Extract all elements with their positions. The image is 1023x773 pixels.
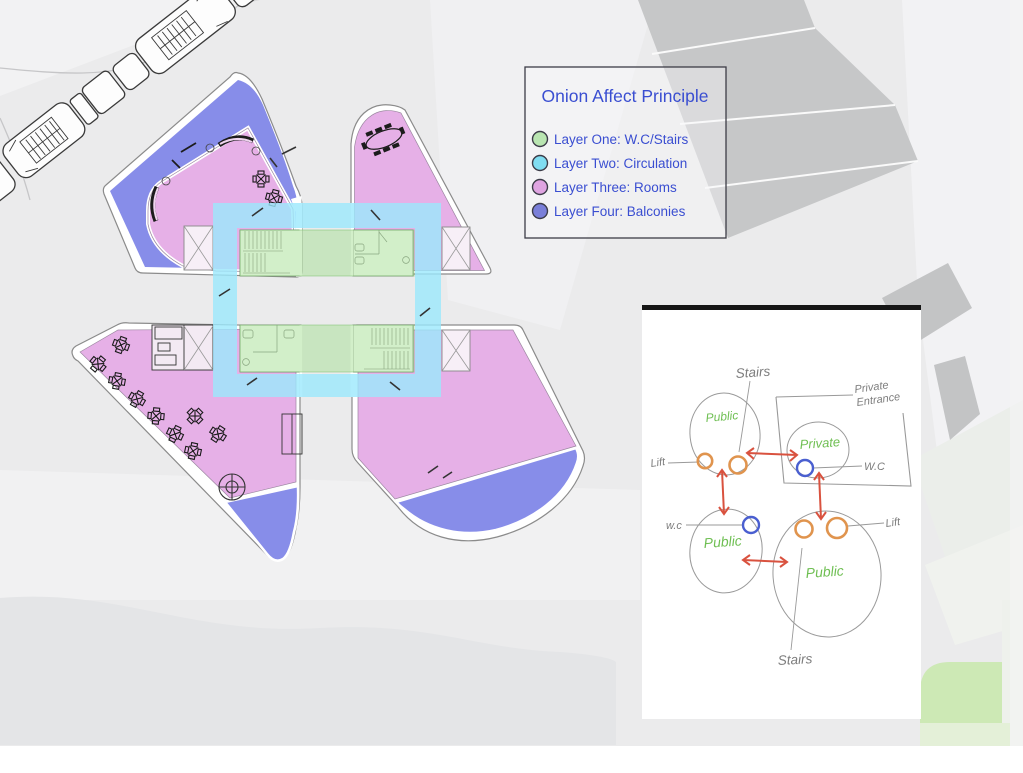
svg-text:Layer Four: Balconies: Layer Four: Balconies: [554, 204, 686, 219]
svg-text:w.c: w.c: [666, 520, 682, 532]
svg-text:Public: Public: [705, 408, 739, 425]
svg-text:Onion Affect Principle: Onion Affect Principle: [542, 86, 709, 106]
svg-text:W.C: W.C: [864, 461, 885, 473]
svg-text:Stairs: Stairs: [777, 651, 812, 668]
svg-text:Lift: Lift: [650, 456, 667, 470]
svg-text:Public: Public: [805, 562, 844, 581]
svg-text:Layer Three: Rooms: Layer Three: Rooms: [554, 180, 677, 195]
svg-text:Layer Two: Circulation: Layer Two: Circulation: [554, 156, 687, 171]
svg-text:Private: Private: [799, 434, 840, 452]
svg-text:Lift: Lift: [885, 516, 902, 530]
svg-text:Public: Public: [703, 532, 742, 551]
svg-text:Layer One: W.C/Stairs: Layer One: W.C/Stairs: [554, 132, 689, 147]
svg-text:Stairs: Stairs: [735, 364, 771, 381]
